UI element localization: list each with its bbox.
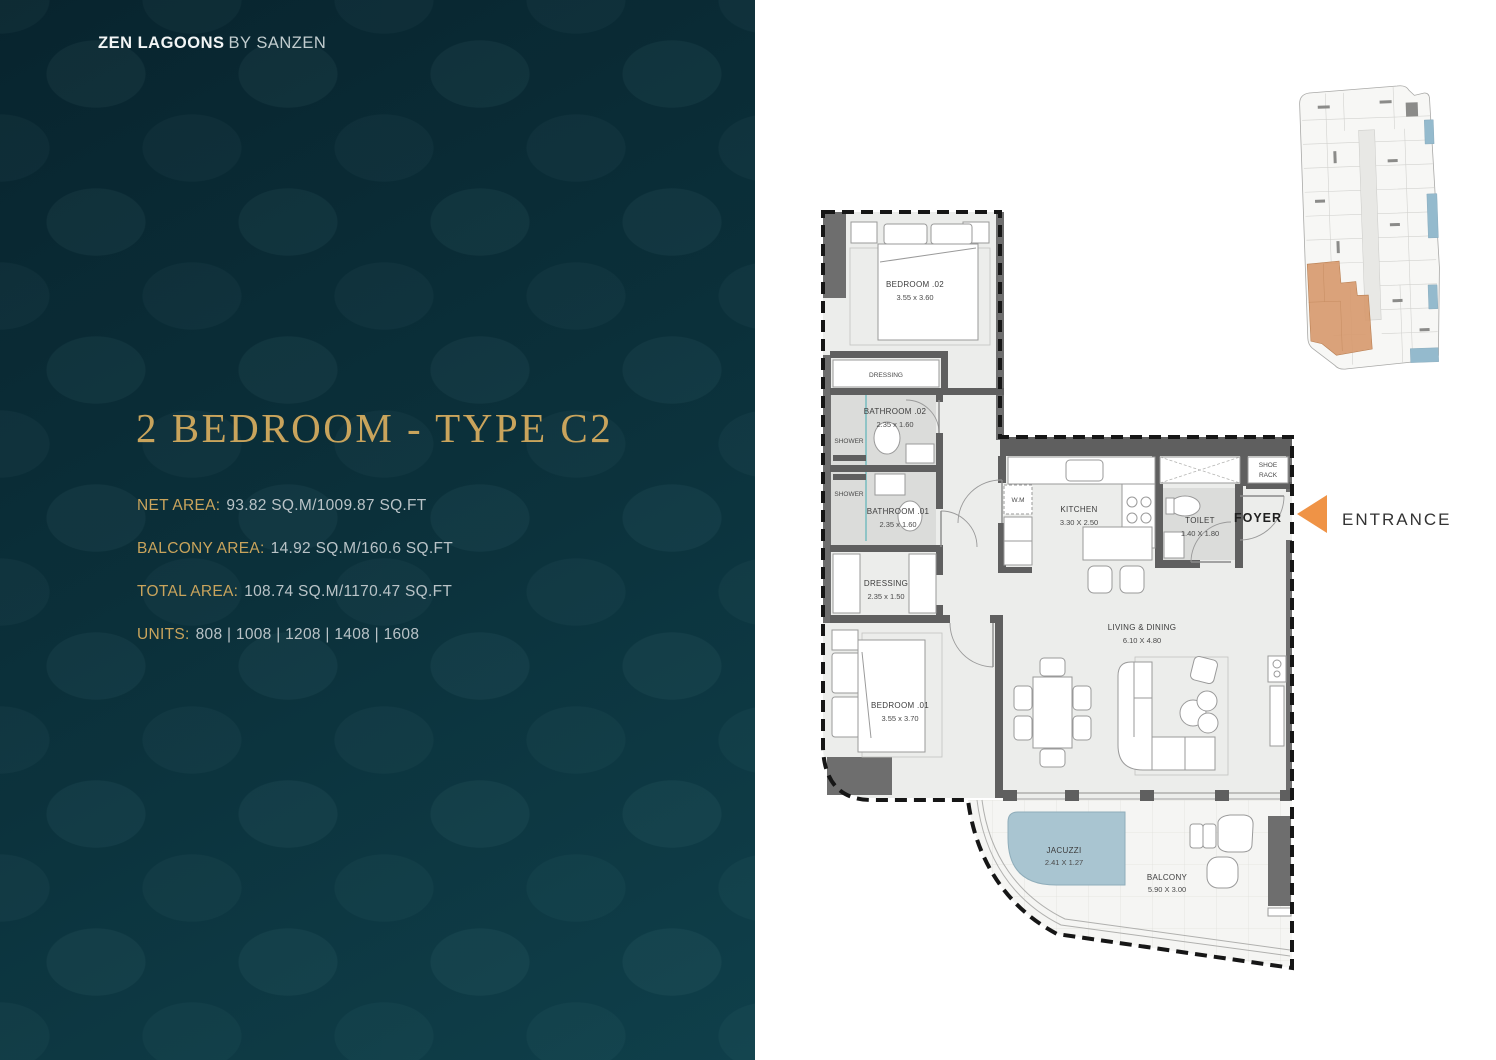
key-plan — [1299, 85, 1443, 371]
wardrobe-icon — [909, 554, 936, 613]
brand: ZEN LAGOONSBY SANZEN — [98, 34, 326, 53]
bathroom-02-dims: 2.35 x 1.60 — [876, 420, 913, 429]
balcony-label: BALCONY — [1147, 873, 1188, 882]
pillow-icon — [832, 653, 860, 693]
detail-label: UNITS: — [137, 626, 190, 643]
detail-value: 93.82 SQ.M/1009.87 SQ.FT — [226, 497, 426, 514]
living-dining-dims: 6.10 X 4.80 — [1123, 636, 1161, 645]
shoe-rack: SHOE RACK — [1248, 457, 1288, 483]
stool-icon — [1088, 566, 1112, 593]
entry-closet — [1160, 457, 1240, 483]
stool-icon — [1120, 566, 1144, 593]
detail-value: 14.92 SQ.M/160.6 SQ.FT — [271, 540, 453, 557]
unit-details: NET AREA:93.82 SQ.M/1009.87 SQ.FT BALCON… — [137, 497, 453, 669]
bed-side-table-icon — [851, 222, 877, 243]
pillow-icon — [884, 224, 927, 244]
dressing-lower-label: DRESSING — [864, 579, 908, 588]
bedroom-02-dims: 3.55 x 3.60 — [896, 293, 933, 302]
entrance-arrow-icon — [1297, 495, 1327, 533]
living-dining-label: LIVING & DINING — [1108, 623, 1177, 632]
detail-units: UNITS:808 | 1008 | 1208 | 1408 | 1608 — [137, 626, 453, 644]
detail-value: 808 | 1008 | 1208 | 1408 | 1608 — [196, 626, 420, 643]
jacuzzi: JACUZZI 2.41 X 1.27 — [1008, 812, 1125, 885]
room-bathroom-02: SHOWER BATHROOM .02 2.35 x 1.60 — [831, 395, 939, 465]
bedroom-02-label: BEDROOM .02 — [886, 280, 944, 289]
bed-icon — [878, 244, 978, 340]
room-toilet: TOILET 1.40 X 1.80 — [1163, 488, 1235, 562]
shower-upper-label: SHOWER — [834, 438, 864, 445]
balcony-table-icon — [1207, 857, 1238, 888]
kitchen-sink-icon — [1066, 460, 1103, 481]
balcony-dims: 5.90 X 3.00 — [1148, 885, 1186, 894]
tv-unit-icon — [1268, 656, 1286, 746]
sink-icon — [875, 474, 905, 495]
brand-suffix: BY SANZEN — [229, 34, 327, 52]
bed-side-table-icon — [832, 630, 858, 650]
detail-total-area: TOTAL AREA:108.74 SQ.M/1170.47 SQ.FT — [137, 583, 453, 601]
jacuzzi-label: JACUZZI — [1047, 846, 1082, 855]
bed-icon — [858, 640, 925, 752]
toilet-dims: 1.40 X 1.80 — [1181, 529, 1219, 538]
foyer-label: FOYER — [1234, 511, 1282, 525]
room-wm: W.M — [1004, 485, 1032, 565]
detail-label: BALCONY AREA: — [137, 540, 265, 557]
shoe-rack-label-1: SHOE — [1259, 462, 1278, 469]
bathroom-02-label: BATHROOM .02 — [864, 407, 927, 416]
balcony-pillar — [1268, 816, 1291, 906]
detail-label: NET AREA: — [137, 497, 220, 514]
bathroom-01-dims: 2.35 x 1.60 — [879, 520, 916, 529]
shoe-rack-label-2: RACK — [1259, 472, 1278, 479]
entrance-label: ENTRANCE — [1342, 510, 1452, 529]
entrance: ENTRANCE — [1297, 495, 1452, 533]
bedroom-01-dims: 3.55 x 3.70 — [881, 714, 918, 723]
detail-label: TOTAL AREA: — [137, 583, 238, 600]
floor-plan: JACUZZI 2.41 X 1.27 BALCONY 5.90 X 3.00 — [755, 0, 1496, 1060]
kitchen-island-icon — [1083, 527, 1152, 560]
brand-panel: ZEN LAGOONSBY SANZEN 2 BEDROOM - TYPE C2… — [0, 0, 755, 1060]
page-title: 2 BEDROOM - TYPE C2 — [136, 404, 613, 452]
kitchen-label: KITCHEN — [1060, 505, 1097, 514]
jacuzzi-dims: 2.41 X 1.27 — [1045, 858, 1083, 867]
toilet-label: TOILET — [1185, 516, 1215, 525]
pillow-icon — [931, 224, 972, 244]
detail-net-area: NET AREA:93.82 SQ.M/1009.87 SQ.FT — [137, 497, 453, 515]
bedroom-01-label: BEDROOM .01 — [871, 701, 929, 710]
bathroom-01-label: BATHROOM .01 — [867, 507, 930, 516]
dressing-lower-dims: 2.35 x 1.50 — [867, 592, 904, 601]
kitchen-dims: 3.30 X 2.50 — [1060, 518, 1098, 527]
room-dressing-upper: DRESSING — [833, 360, 939, 387]
detail-balcony-area: BALCONY AREA:14.92 SQ.M/160.6 SQ.FT — [137, 540, 453, 558]
dressing-upper-label: DRESSING — [869, 372, 903, 379]
wm-label: W.M — [1012, 497, 1025, 504]
wardrobe-icon — [833, 554, 860, 613]
balcony-pillar-base — [1268, 908, 1291, 916]
pillow-icon — [832, 697, 860, 737]
detail-value: 108.74 SQ.M/1170.47 SQ.FT — [244, 583, 452, 600]
shower-lower-label: SHOWER — [834, 491, 864, 498]
sink-icon — [906, 444, 934, 463]
brand-name: ZEN LAGOONS — [98, 34, 225, 52]
